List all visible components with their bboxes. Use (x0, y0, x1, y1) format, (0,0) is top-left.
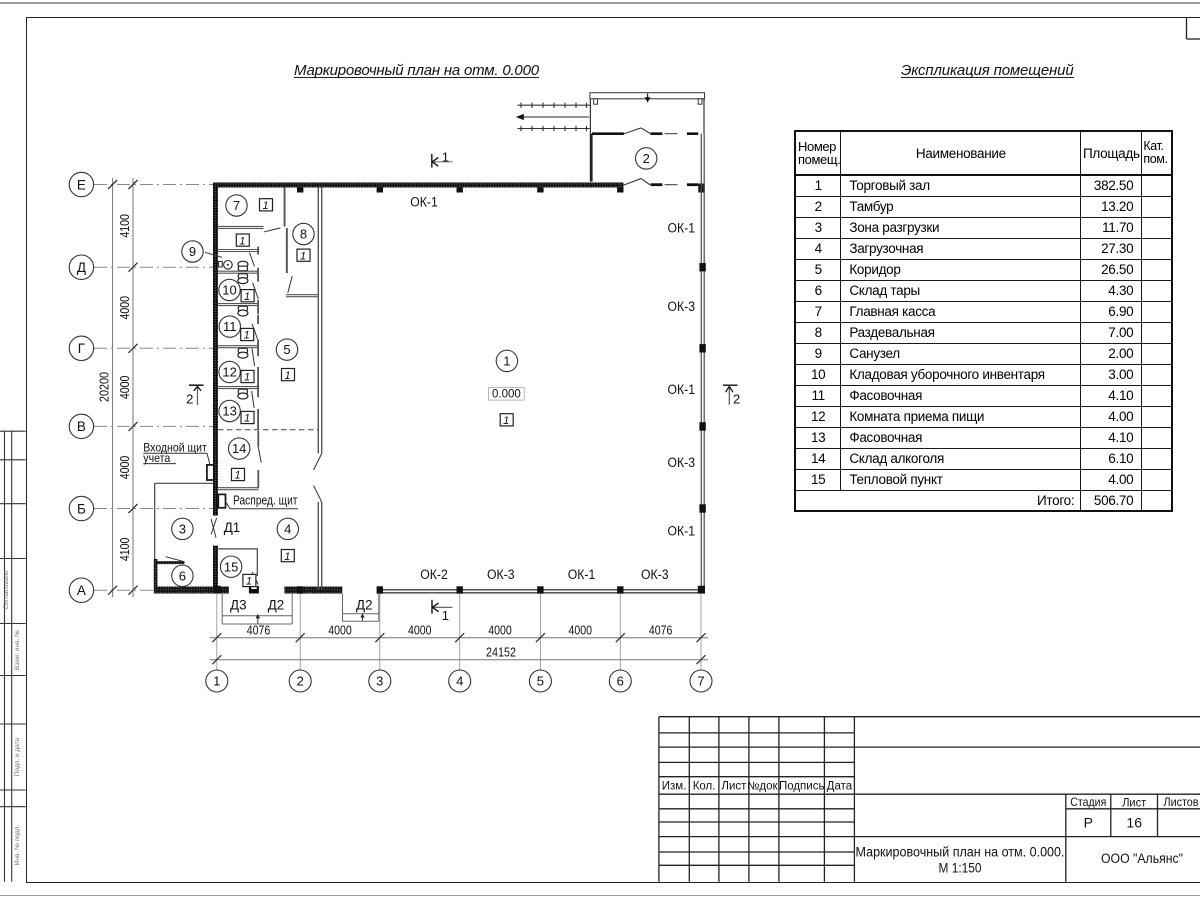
svg-text:ОК-2: ОК-2 (420, 567, 448, 582)
svg-text:Р: Р (1084, 815, 1093, 831)
svg-text:Д1: Д1 (224, 520, 241, 535)
svg-text:1: 1 (284, 370, 290, 382)
svg-text:9: 9 (189, 244, 196, 259)
svg-text:4076: 4076 (247, 624, 271, 638)
svg-text:6: 6 (179, 568, 186, 583)
svg-text:2: 2 (643, 151, 650, 166)
svg-text:Лист: Лист (721, 781, 747, 793)
svg-text:2: 2 (186, 391, 193, 406)
svg-text:16: 16 (1126, 815, 1142, 831)
svg-text:1: 1 (244, 330, 250, 342)
svg-text:Подп. и дата: Подп. и дата (14, 737, 21, 776)
svg-text:Стадия: Стадия (1070, 795, 1106, 809)
svg-text:ОК-3: ОК-3 (487, 567, 515, 582)
svg-text:1: 1 (244, 372, 250, 384)
svg-text:10: 10 (222, 283, 236, 298)
svg-text:Листов: Листов (1164, 795, 1199, 809)
svg-text:13: 13 (222, 404, 236, 419)
svg-text:3: 3 (179, 522, 186, 537)
svg-text:1: 1 (244, 413, 250, 425)
svg-text:№док.: №док. (747, 781, 781, 793)
svg-text:М 1:150: М 1:150 (939, 861, 982, 876)
svg-text:ОК-1: ОК-1 (410, 195, 438, 210)
svg-text:Лист: Лист (1122, 795, 1146, 809)
svg-text:4: 4 (456, 674, 463, 689)
svg-text:Б: Б (77, 501, 86, 516)
svg-text:А: А (77, 583, 86, 598)
svg-text:5: 5 (283, 342, 290, 357)
svg-text:7: 7 (233, 198, 240, 213)
svg-text:Д2: Д2 (268, 598, 285, 613)
svg-text:Д3: Д3 (230, 598, 247, 613)
svg-text:ОК-3: ОК-3 (668, 455, 696, 470)
svg-text:1: 1 (442, 149, 449, 164)
svg-text:4000: 4000 (118, 456, 132, 480)
svg-text:4076: 4076 (649, 624, 673, 638)
svg-text:Д2: Д2 (356, 598, 373, 613)
svg-text:Г: Г (78, 341, 86, 356)
svg-text:4000: 4000 (488, 624, 512, 638)
svg-text:8: 8 (300, 227, 307, 242)
svg-text:6: 6 (617, 674, 624, 689)
svg-text:11: 11 (223, 319, 237, 334)
svg-text:Е: Е (77, 177, 86, 192)
svg-text:1: 1 (239, 235, 245, 247)
svg-text:ООО "Альянс": ООО "Альянс" (1101, 851, 1183, 866)
svg-text:ОК-1: ОК-1 (668, 221, 696, 236)
svg-text:Подпись: Подпись (779, 781, 825, 793)
svg-text:4000: 4000 (569, 624, 593, 638)
svg-text:ОК-1: ОК-1 (568, 567, 596, 582)
svg-text:4: 4 (284, 522, 291, 537)
svg-text:4100: 4100 (118, 538, 132, 562)
svg-text:4000: 4000 (118, 376, 132, 400)
svg-text:Кол.: Кол. (693, 781, 716, 793)
svg-text:1: 1 (262, 200, 268, 212)
svg-text:1: 1 (234, 470, 240, 482)
svg-text:1: 1 (284, 551, 290, 563)
svg-text:1: 1 (300, 250, 306, 262)
svg-text:Согласовано: Согласовано (3, 570, 10, 609)
svg-text:1: 1 (503, 354, 510, 369)
svg-text:1: 1 (246, 576, 252, 588)
svg-text:Инв. № подл.: Инв. № подл. (14, 825, 21, 866)
svg-text:15: 15 (224, 559, 238, 574)
svg-text:4000: 4000 (328, 624, 352, 638)
svg-text:2: 2 (297, 674, 304, 689)
svg-text:4100: 4100 (118, 214, 132, 238)
svg-text:ОК-1: ОК-1 (668, 524, 696, 539)
svg-text:1: 1 (244, 291, 250, 303)
svg-text:1: 1 (442, 608, 449, 623)
svg-text:ОК-3: ОК-3 (641, 567, 669, 582)
svg-text:2: 2 (733, 391, 740, 406)
svg-text:14: 14 (232, 441, 246, 456)
svg-text:Д: Д (77, 260, 86, 275)
svg-text:4000: 4000 (118, 296, 132, 320)
svg-text:12: 12 (222, 365, 236, 380)
svg-text:24152: 24152 (486, 645, 516, 659)
svg-text:0.000: 0.000 (492, 389, 521, 401)
svg-text:4000: 4000 (408, 624, 432, 638)
svg-text:В: В (77, 419, 86, 434)
svg-text:ОК-1: ОК-1 (668, 382, 696, 397)
svg-text:Дата: Дата (827, 781, 853, 793)
svg-text:ОК-3: ОК-3 (668, 299, 696, 314)
svg-text:Взам. инв. №: Взам. инв. № (14, 630, 21, 670)
svg-text:Маркировочный план на отм. 0.0: Маркировочный план на отм. 0.000. (856, 845, 1065, 860)
svg-text:1: 1 (213, 674, 220, 689)
svg-text:Изм.: Изм. (662, 781, 687, 793)
svg-text:7: 7 (697, 674, 704, 689)
svg-text:20200: 20200 (98, 372, 112, 402)
svg-text:3: 3 (376, 674, 383, 689)
svg-text:1: 1 (503, 415, 509, 427)
svg-text:Распред. щит: Распред. щит (233, 493, 298, 507)
svg-text:5: 5 (537, 674, 544, 689)
